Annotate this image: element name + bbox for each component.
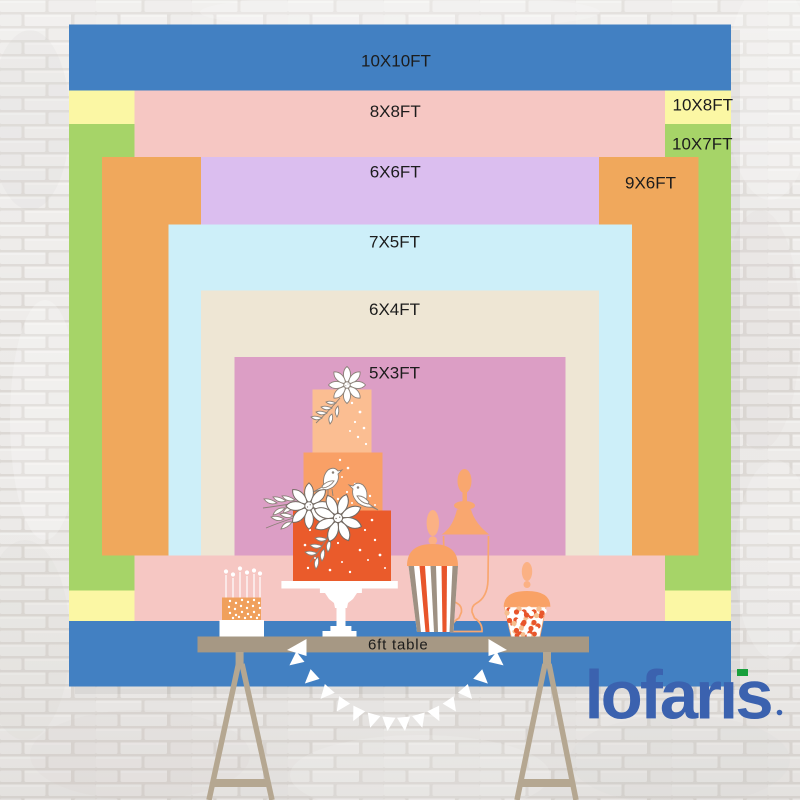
svg-text:10X8FT: 10X8FT bbox=[673, 95, 733, 114]
svg-text:6X4FT: 6X4FT bbox=[369, 300, 420, 319]
svg-text:10X7FT: 10X7FT bbox=[672, 135, 732, 154]
svg-text:10X10FT: 10X10FT bbox=[361, 51, 431, 70]
svg-text:lofarıs: lofarıs bbox=[585, 656, 772, 733]
svg-text:6ft table: 6ft table bbox=[368, 637, 429, 654]
svg-text:8X8FT: 8X8FT bbox=[370, 102, 421, 121]
svg-text:7X5FT: 7X5FT bbox=[369, 232, 420, 251]
svg-text:9X6FT: 9X6FT bbox=[625, 173, 676, 192]
svg-text:6X6FT: 6X6FT bbox=[370, 162, 421, 181]
svg-text:5X3FT: 5X3FT bbox=[369, 364, 420, 383]
